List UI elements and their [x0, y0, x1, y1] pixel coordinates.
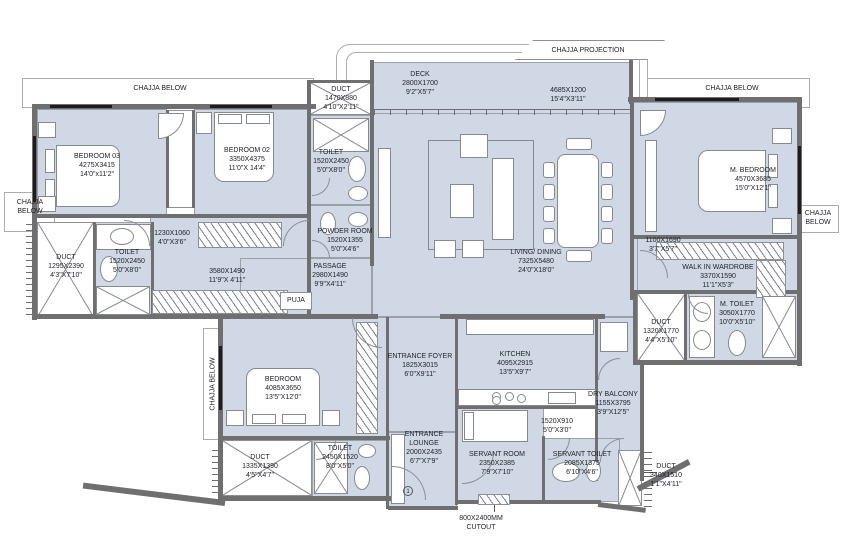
chair [566, 250, 592, 262]
basin [348, 212, 368, 227]
label-cutout: 800X2400MMCUTOUT [459, 514, 503, 532]
wall [633, 290, 637, 365]
wall [457, 406, 597, 409]
wardrobe-bedroom02 [198, 222, 282, 248]
basin [693, 330, 711, 350]
chair [434, 240, 456, 258]
wall [630, 97, 634, 300]
wall [386, 317, 389, 509]
wall [222, 436, 390, 440]
stove-burner [492, 396, 501, 405]
window [33, 136, 36, 202]
window [50, 105, 112, 108]
label-deck-dim: 4685X120015'4"X3'11" [550, 86, 586, 104]
pillow [218, 114, 242, 124]
chair [543, 206, 555, 222]
label-hall-dim: 3580X149011'9"X 4'11" [209, 267, 246, 285]
wall [370, 60, 374, 114]
deck-railing [374, 109, 632, 115]
window [210, 105, 272, 108]
leader-line [494, 505, 495, 512]
stove-burner [517, 394, 526, 403]
side-table [226, 410, 244, 426]
side-table [322, 410, 340, 426]
label-entrance-foyer: ENTRANCE FOYER1825X30156'0"X9'11" [388, 352, 453, 379]
label-servant-room: SERVANT ROOM2350X23857'9"X7'10" [469, 450, 525, 477]
wc [728, 330, 746, 356]
window [655, 98, 739, 101]
label-kitchen-window-dim: 1520X9105'0"X3'0" [541, 417, 573, 435]
label-passage: PASSAGE2980X14909'9"X4'11" [312, 262, 348, 289]
sofa [492, 158, 514, 240]
wall [542, 436, 545, 504]
wall [455, 317, 458, 505]
label-m-bedroom: M. BEDROOM4570X368515'0"X12'1" [730, 166, 776, 193]
washer [600, 322, 628, 352]
cutout-hatch [478, 494, 510, 505]
kitchen-counter [466, 319, 594, 335]
pillow [282, 414, 306, 424]
chair [601, 228, 613, 244]
wall [307, 80, 371, 83]
chair [543, 184, 555, 200]
chair [462, 240, 484, 258]
entrance-marker: 1 [403, 486, 413, 496]
label-chajja-below-top-right: CHAJJA BELOW [705, 84, 758, 93]
pillow [252, 414, 276, 424]
chair [566, 138, 592, 150]
chair [601, 206, 613, 222]
side-table [38, 122, 56, 138]
wall [307, 80, 311, 318]
wall [192, 110, 195, 208]
basin [348, 186, 368, 201]
shower [313, 118, 369, 152]
wall [37, 214, 311, 218]
wall-angled [83, 483, 226, 506]
chair [601, 162, 613, 178]
hatch-ticks [212, 450, 220, 496]
label-toilet-left: TOILET1520X24505'0"X8'0" [109, 248, 145, 275]
label-entrance-lounge: ENTRANCELOUNGE2000X24356'7"X7'9" [405, 430, 444, 466]
label-dry-balcony: DRY BALCONY1155X37953'9"X12'5" [588, 390, 638, 417]
floor-plan: DECK2800X17009'2"X5'7" 4685X120015'4"X3'… [0, 0, 848, 537]
wall [32, 314, 378, 319]
label-duct-mid: DUCT1320X17704'4"X5'10" [643, 318, 679, 345]
label-powder-room: POWDER ROOM1520X13555'0"X4'6" [317, 227, 372, 254]
armchair [460, 134, 488, 158]
label-chajja-below-vertical: CHAJJA BELOW [210, 357, 217, 410]
label-walk-in-wardrobe: WALK IN WARDROBE3370X159011'1"X5'3" [682, 263, 753, 290]
chair [601, 184, 613, 200]
kitchen-sink [548, 392, 576, 404]
wall [684, 293, 687, 362]
window [219, 346, 222, 410]
tv-unit [645, 140, 657, 232]
shower [762, 296, 796, 358]
dining-table [557, 154, 599, 248]
label-kitchen: KITCHEN4095X291513'5"X9'7" [497, 350, 533, 377]
label-bedroom-03: BEDROOM 034275X341514'0"x11'2" [74, 152, 120, 179]
coffee-table [450, 184, 474, 218]
label-duct-left: DUCT1295X23904'3"X7'10" [48, 253, 84, 280]
wall [629, 60, 633, 104]
shower [96, 286, 150, 315]
label-walkin-entry-dim: 1100X16903'7"X5'7" [645, 236, 680, 254]
label-puja: PUJA [287, 296, 305, 305]
tv-unit [378, 148, 391, 238]
wardrobe-hall [152, 290, 288, 314]
wardrobe-walkin-return [756, 260, 786, 298]
pillow [246, 114, 270, 124]
label-duct-bottom-right: DUCT340X15101'1"X4'11" [650, 462, 682, 489]
label-bedroom-02: BEDROOM 023350X437511'0"X 14'4" [224, 146, 270, 173]
label-living-dining: LIVING/ DINING7325X548024'0"X18'0" [510, 248, 561, 275]
basin [358, 444, 376, 458]
chair [543, 228, 555, 244]
label-duct-bottom-left: DUCT1335X13904'5"X4'7" [242, 453, 278, 480]
pillow [45, 149, 55, 173]
stove-burner [505, 392, 514, 401]
wall [222, 496, 392, 501]
pillow [464, 412, 474, 440]
label-chajja-projection: CHAJJA PROJECTION [551, 46, 624, 55]
label-bedroom-bottom: BEDROOM4085X365013'5"X12'0" [265, 375, 301, 402]
label-chajja-below-top-left: CHAJJA BELOW [133, 84, 186, 93]
hatch-ticks [26, 224, 34, 318]
wall [545, 500, 601, 504]
label-servant-toilet: SERVANT TOILET2085X13756'10"X4'6" [553, 450, 612, 477]
wall [633, 360, 802, 365]
label-chajja-below-right: CHAJJABELOW [805, 209, 831, 227]
chair [543, 162, 555, 178]
wall [388, 506, 458, 510]
side-table [772, 128, 792, 144]
label-toilet-top: TOILET1520X24505'0"X8'0" [313, 148, 349, 175]
label-toilet-bottom: TOILET2450X15208'0"X5'0" [322, 444, 358, 471]
wall [797, 240, 802, 366]
side-table [196, 112, 212, 134]
label-deck: DECK2800X17009'2"X5'7" [402, 70, 438, 97]
side-table [772, 218, 792, 234]
label-chajja-below-left: CHAJJABELOW [17, 198, 43, 216]
label-wardrobe-dim: 1230X10604'0"X3'6" [154, 229, 190, 247]
label-duct-top: DUCT1470X8804'10"X2'11" [323, 85, 358, 112]
label-m-toilet: M. TOILET3050X177010'0"X5'10" [719, 300, 755, 327]
wc [348, 156, 366, 182]
window [798, 146, 801, 214]
